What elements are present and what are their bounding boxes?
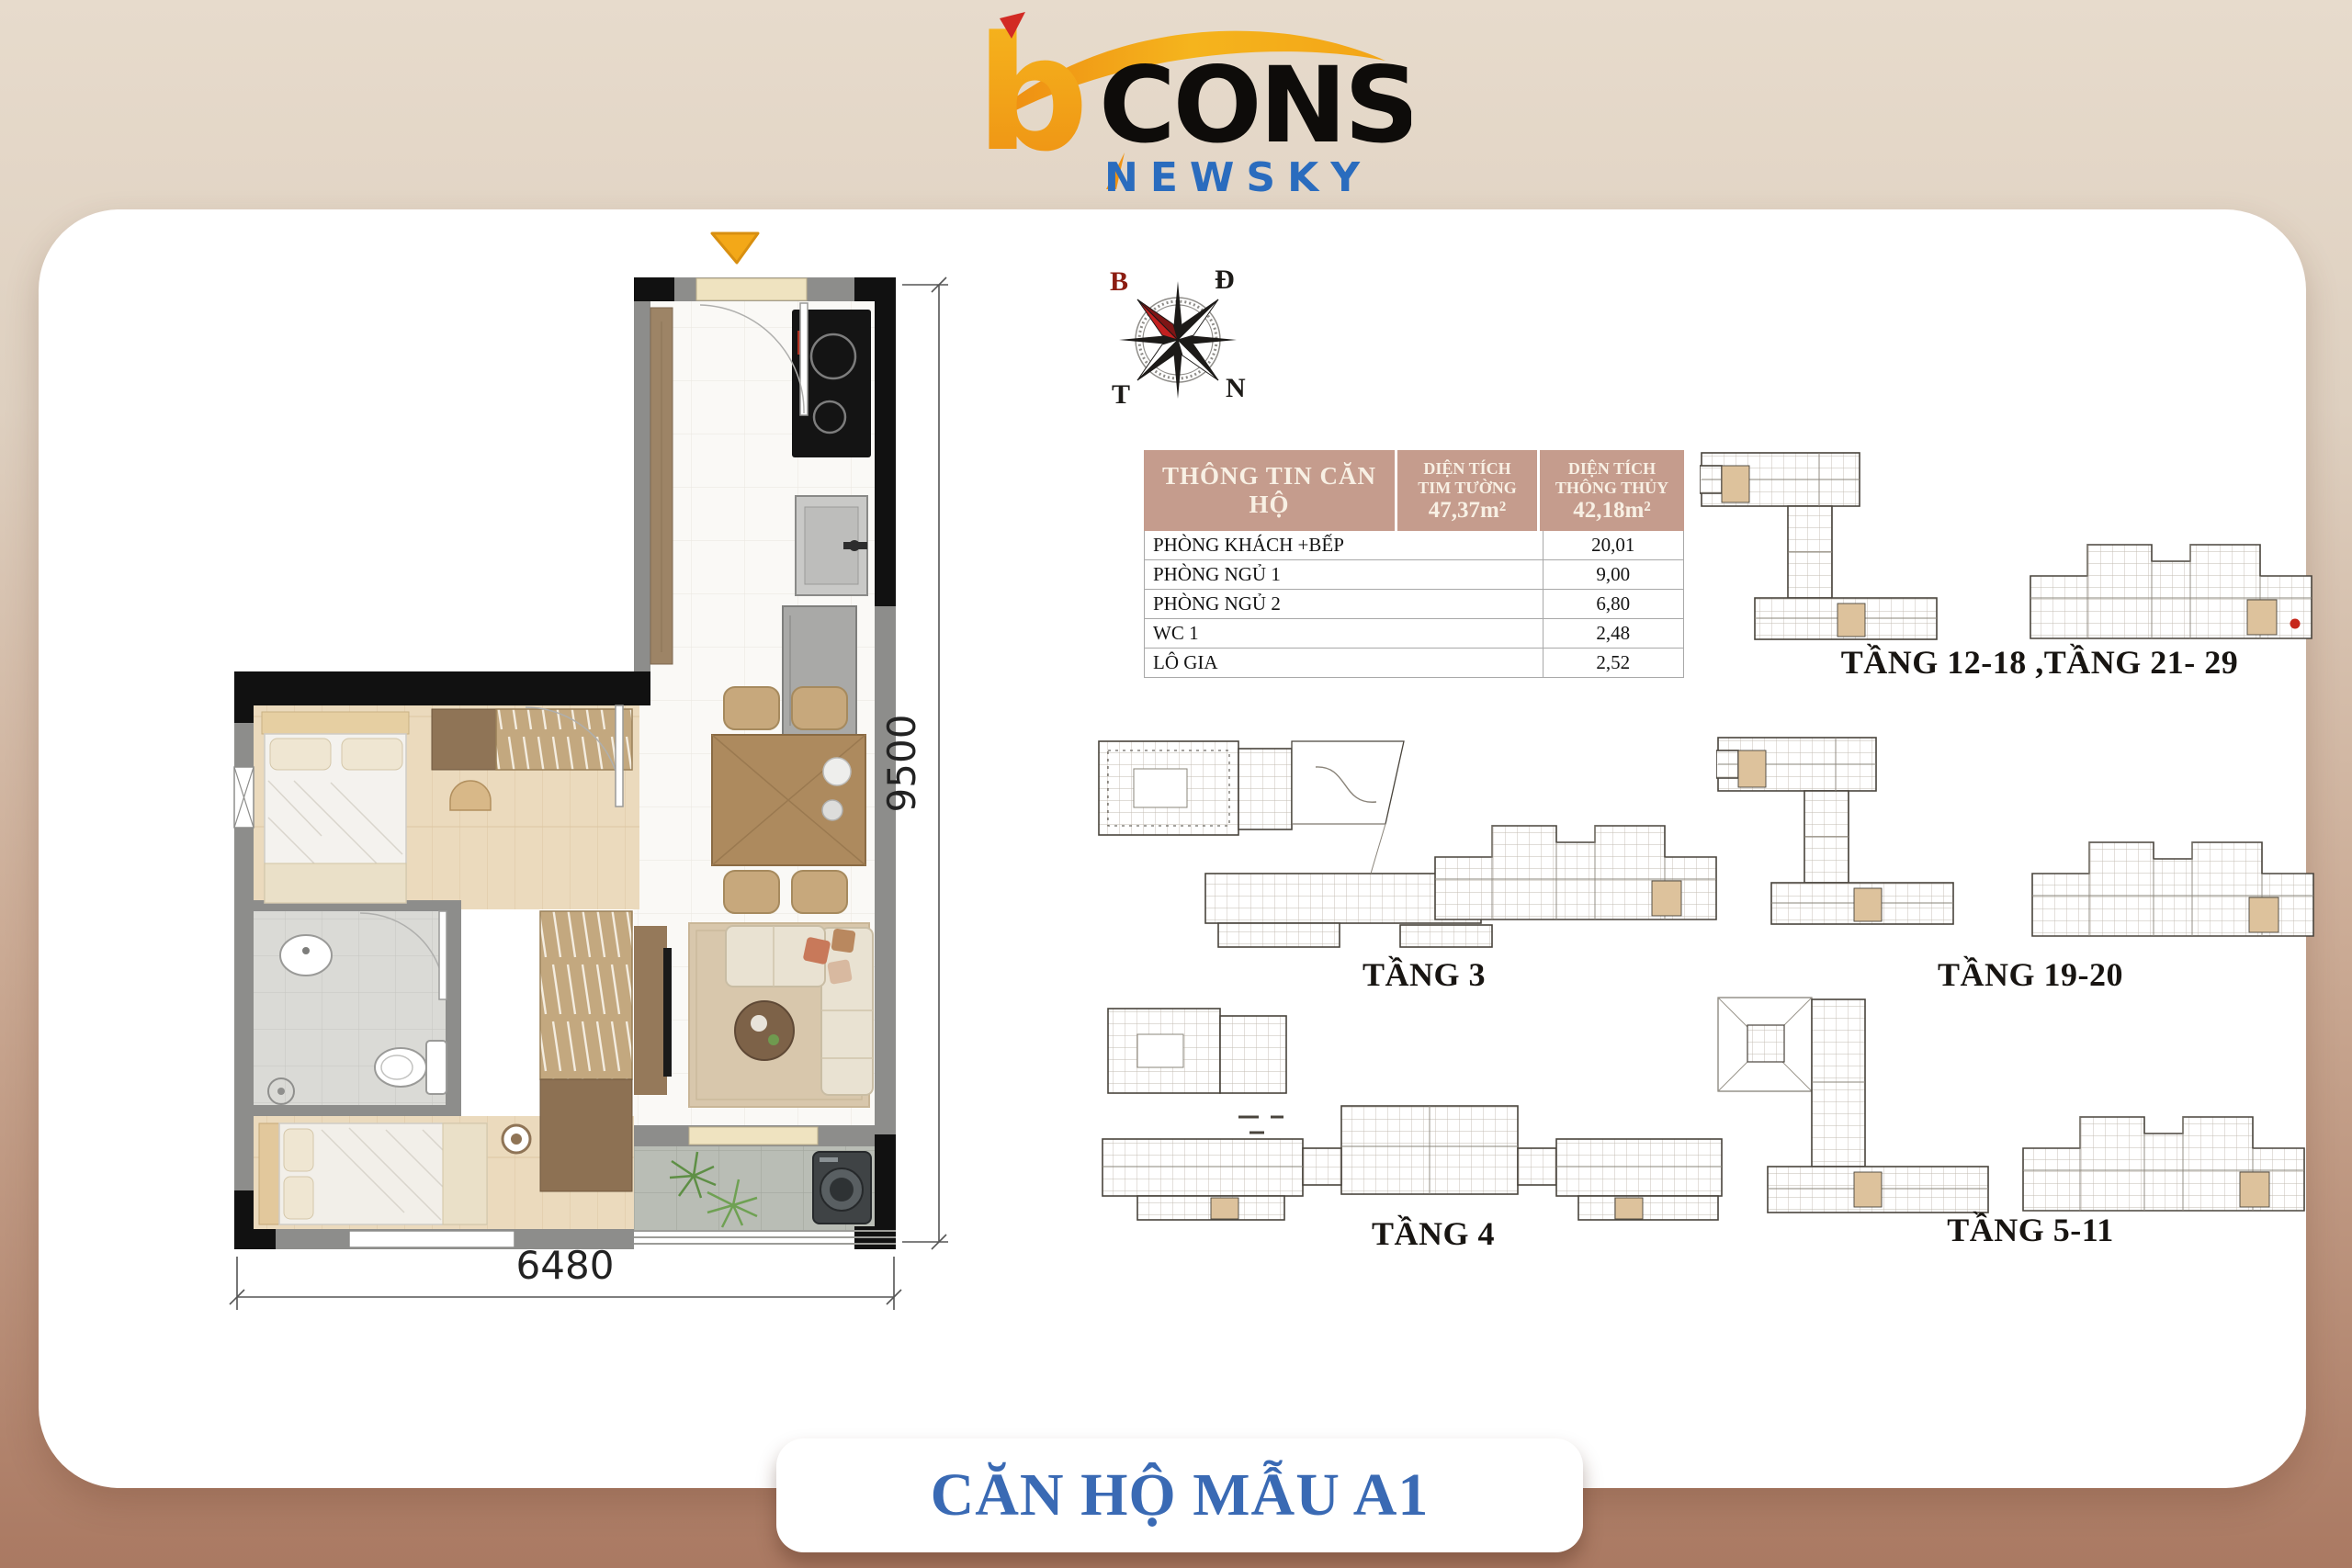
col-tim-tuong: DIỆN TÍCH TIM TƯỜNG 47,37m² [1397,450,1537,531]
table-row: WC 1 2,48 [1145,618,1683,648]
brochure-page: b CONS NEWSKY [0,0,2352,1568]
coffee-table [735,1001,794,1060]
logo-cons-text: CONS [1099,44,1411,166]
floor-plate-tang-12-18-21-29 [1700,444,2315,644]
floor-plate-tang-19-20 [1711,728,2317,949]
table-row: PHÒNG KHÁCH +BẾP 20,01 [1145,531,1683,559]
wc-sink [280,935,332,976]
row-label: LÔ GIA [1145,649,1543,677]
floor-plate-tang-3 [1095,728,1729,953]
apartment-floor-plan: 6480 9500 [211,220,974,1332]
col1-line2: TIM TƯỜNG [1418,479,1517,498]
logo-newsky-text: NEWSKY [1104,154,1372,198]
unit-location-dot [2290,619,2301,629]
table-row: PHÒNG NGỦ 1 9,00 [1145,559,1683,589]
row-label: PHÒNG NGỦ 1 [1145,560,1543,589]
living-room [689,923,873,1107]
row-value: 2,48 [1543,619,1683,648]
tall-wardrobe [540,911,632,1079]
compass-label-east: Đ [1215,265,1235,296]
compass-label-south: N [1226,373,1246,404]
bcons-newsky-logo: b CONS NEWSKY [970,4,1411,198]
col1-value: 47,37m² [1429,498,1507,523]
floor-plate-tang-5-11 [1716,994,2313,1224]
plate-label-tang-19-20: TẦNG 19-20 [1893,955,2168,994]
height-dimension: 9500 [879,715,924,813]
col2-line1: DIỆN TÍCH [1568,459,1656,479]
col2-value: 42,18m² [1573,498,1651,523]
console-cabinet [540,1079,632,1191]
tv-panel [634,926,667,1095]
apartment-info-table: THÔNG TIN CĂN HỘ DIỆN TÍCH TIM TƯỜNG 47,… [1144,450,1684,678]
col2-line2: THÔNG THỦY [1555,479,1668,498]
table-title: THÔNG TIN CĂN HỘ [1144,450,1395,531]
row-label: WC 1 [1145,619,1543,648]
apartment-title-banner: CĂN HỘ MẪU A1 [776,1438,1583,1552]
table-header: THÔNG TIN CĂN HỘ DIỆN TÍCH TIM TƯỜNG 47,… [1144,450,1684,531]
width-dimension: 6480 [516,1243,615,1288]
row-value: 20,01 [1543,531,1683,559]
bed2-headboard [259,1123,279,1224]
compass-label-north: B [1110,266,1128,298]
row-value: 2,52 [1543,649,1683,677]
col-thong-thuy: DIỆN TÍCH THÔNG THỦY 42,18m² [1540,450,1684,531]
entry-arrow-marker [712,233,758,263]
bed1-headboard [262,712,409,734]
plate-label-tang-5-11: TẦNG 5-11 [1893,1211,2168,1249]
col1-line1: DIỆN TÍCH [1423,459,1510,479]
row-value: 6,80 [1543,590,1683,618]
plate-label-tang-12-18: TẦNG 12-18 ,TẦNG 21- 29 [1782,643,2297,682]
tv [663,948,672,1077]
plate-label-tang-3: TẦNG 3 [1286,955,1562,994]
apartment-title: CĂN HỘ MẪU A1 [931,1461,1430,1530]
washing-machine [813,1152,871,1224]
table-row: LÔ GIA 2,52 [1145,648,1683,677]
row-value: 9,00 [1543,560,1683,589]
wardrobe1-wood [432,709,496,770]
table-row: PHÒNG NGỦ 2 6,80 [1145,589,1683,618]
row-label: PHÒNG NGỦ 2 [1145,590,1543,618]
plate-label-tang-4: TẦNG 4 [1295,1214,1571,1253]
side-table [503,1125,530,1153]
compass-label-west: T [1112,379,1130,411]
floor-plate-tang-4 [1101,999,1725,1224]
table-body: PHÒNG KHÁCH +BẾP 20,01 PHÒNG NGỦ 1 9,00 … [1144,531,1684,678]
logo-b-glyph: b [976,4,1089,186]
row-label: PHÒNG KHÁCH +BẾP [1145,531,1543,559]
